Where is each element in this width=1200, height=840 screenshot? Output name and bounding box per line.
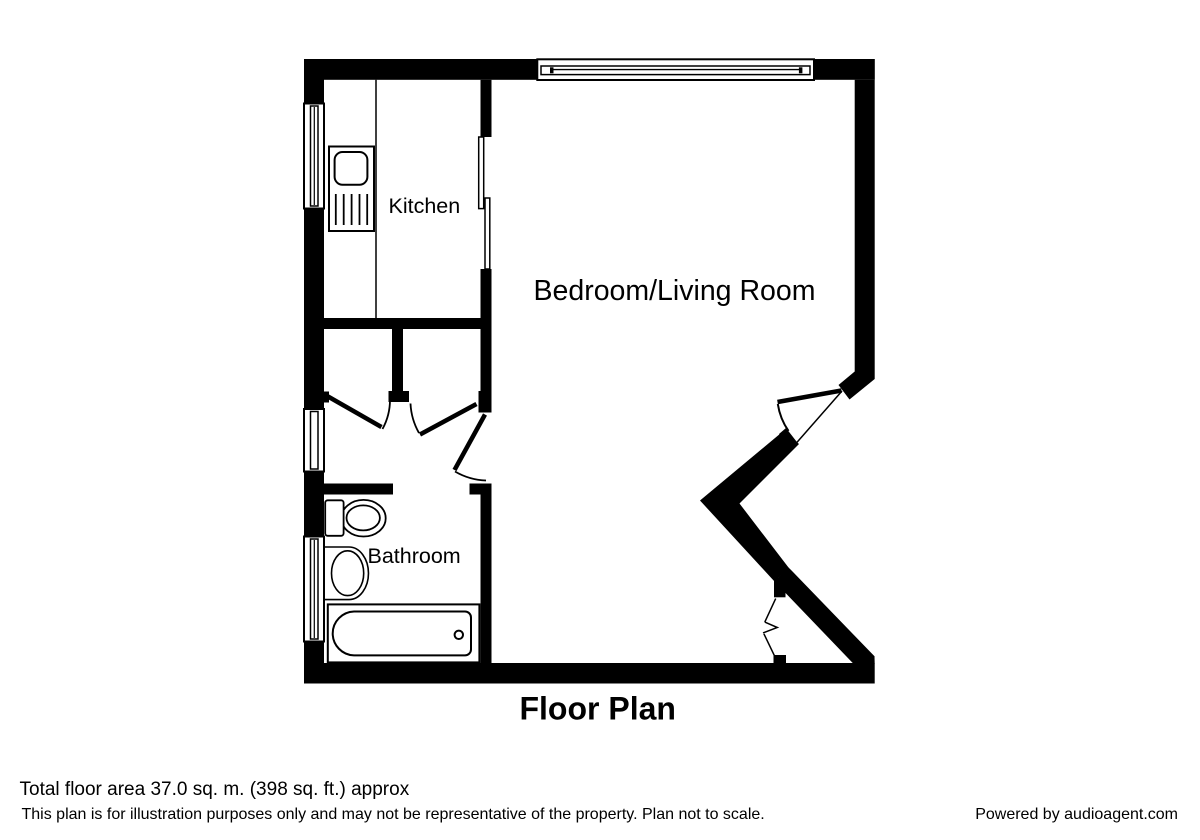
svg-text:Bathroom: Bathroom bbox=[368, 544, 461, 568]
svg-text:Total floor area 37.0 sq. m. (: Total floor area 37.0 sq. m. (398 sq. ft… bbox=[20, 779, 410, 800]
svg-text:Powered by audioagent.com: Powered by audioagent.com bbox=[975, 806, 1178, 823]
svg-text:This plan is for illustration: This plan is for illustration purposes o… bbox=[22, 806, 765, 823]
svg-text:Floor Plan: Floor Plan bbox=[519, 691, 675, 727]
svg-text:Bedroom/Living Room: Bedroom/Living Room bbox=[534, 275, 816, 307]
svg-text:Kitchen: Kitchen bbox=[389, 194, 461, 218]
